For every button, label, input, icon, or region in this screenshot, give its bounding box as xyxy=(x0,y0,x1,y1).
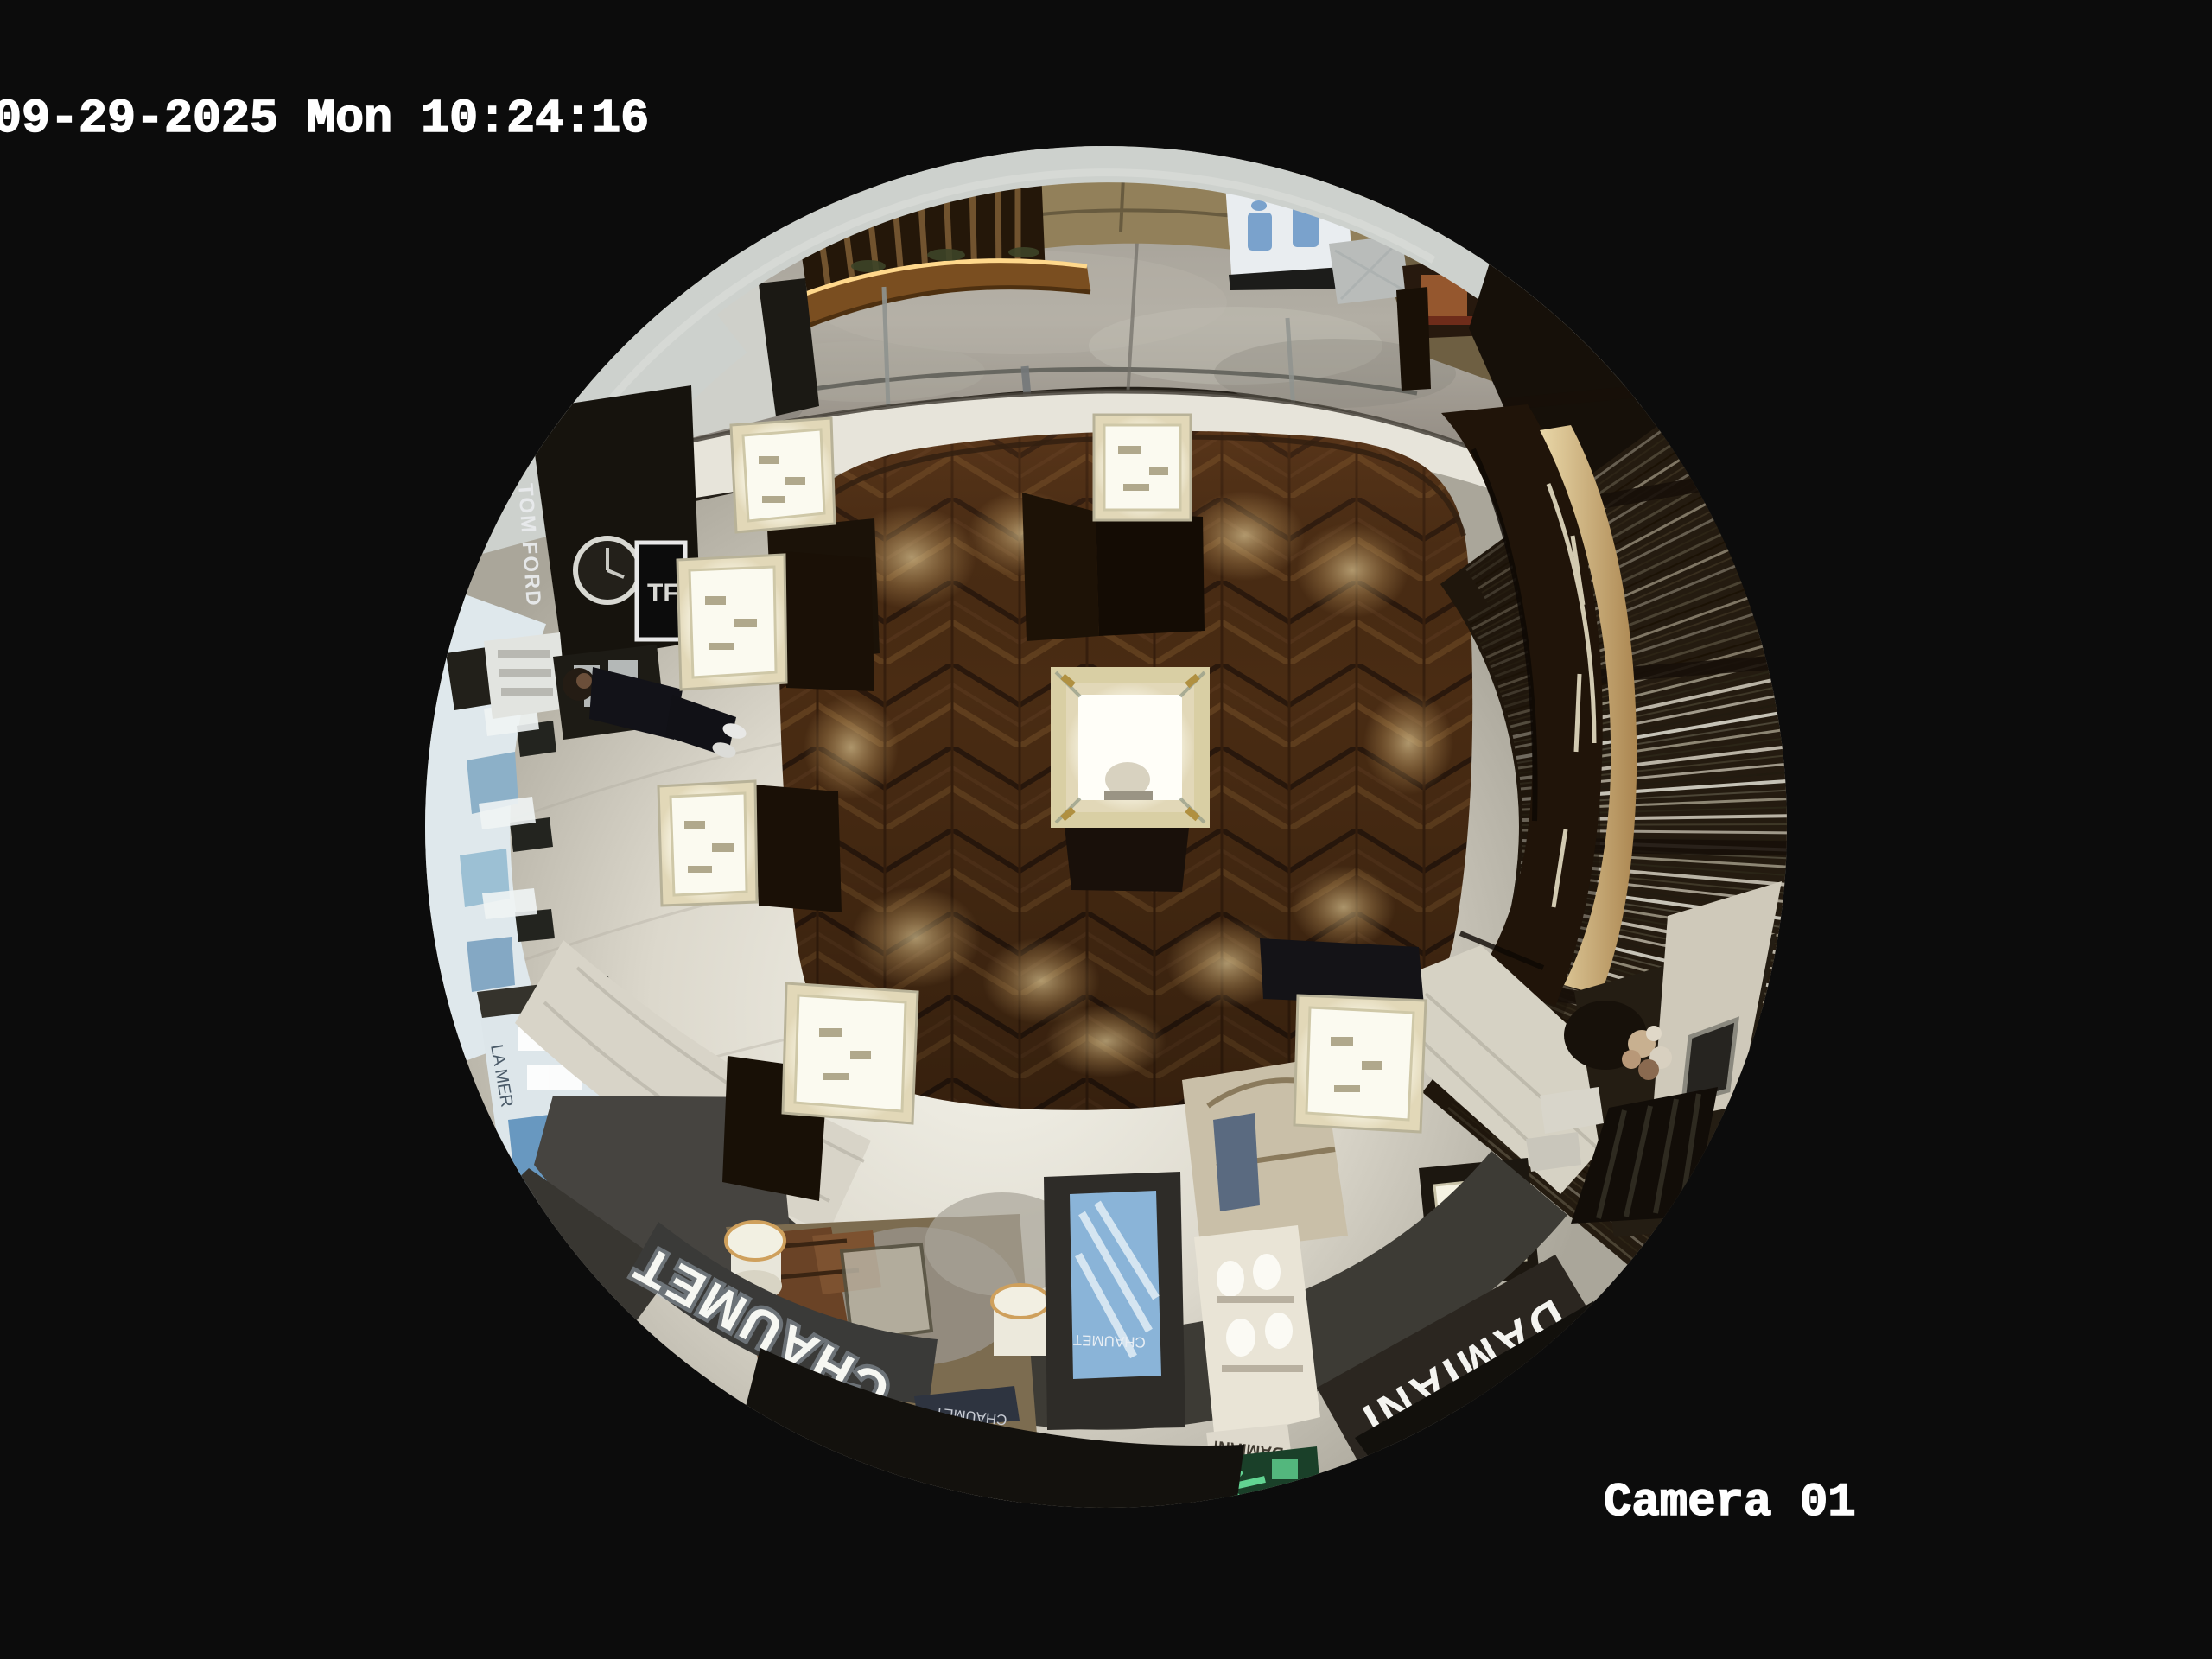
svg-text:09-29-2025 Mon 10:24:16: 09-29-2025 Mon 10:24:16 xyxy=(0,92,649,146)
svg-text:CHAUMET: CHAUMET xyxy=(1072,1332,1146,1351)
svg-text:Camera 01: Camera 01 xyxy=(1604,1477,1856,1529)
svg-text:TF: TF xyxy=(647,579,679,607)
